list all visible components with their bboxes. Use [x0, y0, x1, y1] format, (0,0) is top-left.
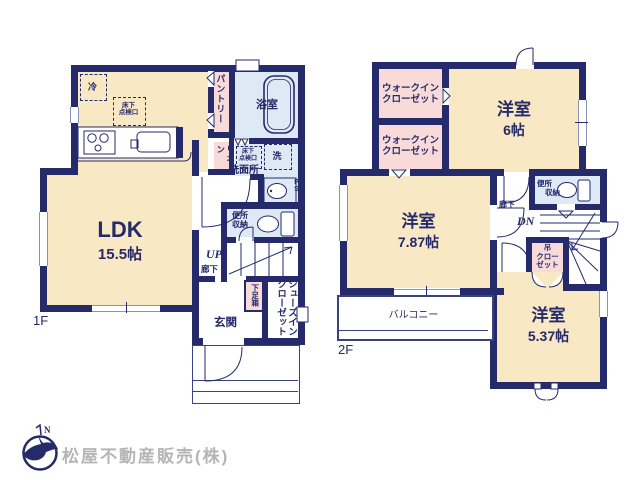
floor2-tag: 2F [338, 343, 364, 358]
wall [340, 288, 394, 295]
bath-label: 浴室 [237, 99, 297, 112]
porch-step-line [192, 380, 298, 381]
wall [563, 237, 569, 284]
wall [192, 140, 199, 176]
company-name: 松屋不動産販売(株) [62, 442, 322, 467]
wall [254, 237, 305, 243]
floorplan-canvas: 冷 床下 点検口 パントリー 浴室 リネン 床下 点検口 洗 洗面所 DS PS… [0, 0, 640, 480]
underfloor-label: 床下 点検口 [113, 102, 144, 117]
shoebox-label: 下足箱 [250, 284, 259, 309]
genkan-label: 玄関 [214, 317, 254, 330]
stairs-up-label: UP [206, 248, 230, 262]
stair-arrow [290, 247, 292, 254]
room-6jo-fill [449, 69, 579, 172]
wall [372, 62, 516, 69]
fridge-label: 冷 [80, 82, 105, 92]
compass-n: N [44, 425, 51, 435]
shutter-arc [547, 389, 558, 400]
wall [71, 72, 78, 175]
room787-size-label: 7.87帖 [347, 234, 490, 250]
room787-label: 洋室 [347, 212, 490, 232]
wall [372, 118, 449, 125]
wall [192, 276, 215, 282]
washer-label: 洗 [264, 151, 290, 161]
toilet2-label: 便所 収納 [537, 180, 563, 197]
pantry-label: パントリー [215, 74, 225, 132]
wall [40, 168, 78, 175]
wall [529, 169, 607, 176]
wall [221, 237, 236, 243]
hall2-label: 廊下 [499, 200, 525, 209]
wall [575, 204, 607, 210]
wall [529, 176, 535, 204]
balcony-inner-line [339, 330, 488, 331]
porch [192, 345, 300, 404]
shutter-arc [535, 389, 546, 400]
room537-label: 洋室 [497, 306, 600, 326]
room537-size-label: 5.37帖 [497, 328, 600, 344]
wall [460, 288, 504, 295]
doorway-gap [516, 62, 534, 69]
doorway-gap [442, 88, 449, 105]
logo-circle [24, 437, 57, 470]
toilet1-label: 便所 収納 [232, 211, 258, 229]
wall [192, 338, 203, 345]
door-marker [559, 211, 573, 218]
wall [409, 169, 504, 176]
door-arc [516, 48, 533, 65]
wall [71, 65, 305, 72]
ldk-size-label: 15.5帖 [60, 246, 180, 263]
bird-icon [23, 436, 58, 460]
wic1-label: ウォークイン クローゼット [379, 84, 442, 106]
window [39, 212, 48, 266]
window [70, 107, 79, 123]
shoes-closet-label: シューズイン クローゼット [268, 279, 296, 337]
window [578, 100, 587, 146]
underfloor2-label: 床下 点検口 [236, 149, 260, 163]
ds-label: DS [297, 143, 305, 165]
window-tick [126, 302, 127, 313]
wall [340, 169, 389, 176]
wall [192, 230, 199, 345]
window [599, 291, 608, 317]
wall [221, 202, 305, 209]
wall [208, 65, 214, 138]
wall [442, 69, 449, 88]
balcony-label: バルコニー [337, 310, 490, 322]
wall [490, 176, 497, 205]
wall [529, 204, 557, 210]
wall [563, 284, 607, 291]
stair-arrow [284, 247, 292, 248]
ps-label: PS [292, 179, 300, 199]
wic2-label: ウォークイン クローゼット [379, 136, 442, 158]
hall1-label: 廊下 [201, 265, 225, 275]
room-787-fill [347, 176, 490, 288]
company-logo: N [16, 424, 64, 476]
washroom-label: 洗面所 [229, 165, 275, 177]
wall [490, 382, 607, 389]
porch-step-line [192, 391, 298, 392]
floor1-tag: 1F [33, 314, 59, 329]
wall [534, 62, 586, 69]
ldk-label: LDK [60, 217, 180, 242]
hanging-closet-label: 吊 クロー ゼット [532, 244, 563, 270]
room6-size-label: 6帖 [449, 122, 579, 138]
stairs-dn-label: DN [517, 215, 543, 229]
wall [442, 105, 449, 176]
stair-direction-line [229, 247, 292, 274]
room6-label: 洋室 [449, 100, 579, 120]
wall [244, 338, 305, 345]
compass-needle [36, 425, 41, 435]
